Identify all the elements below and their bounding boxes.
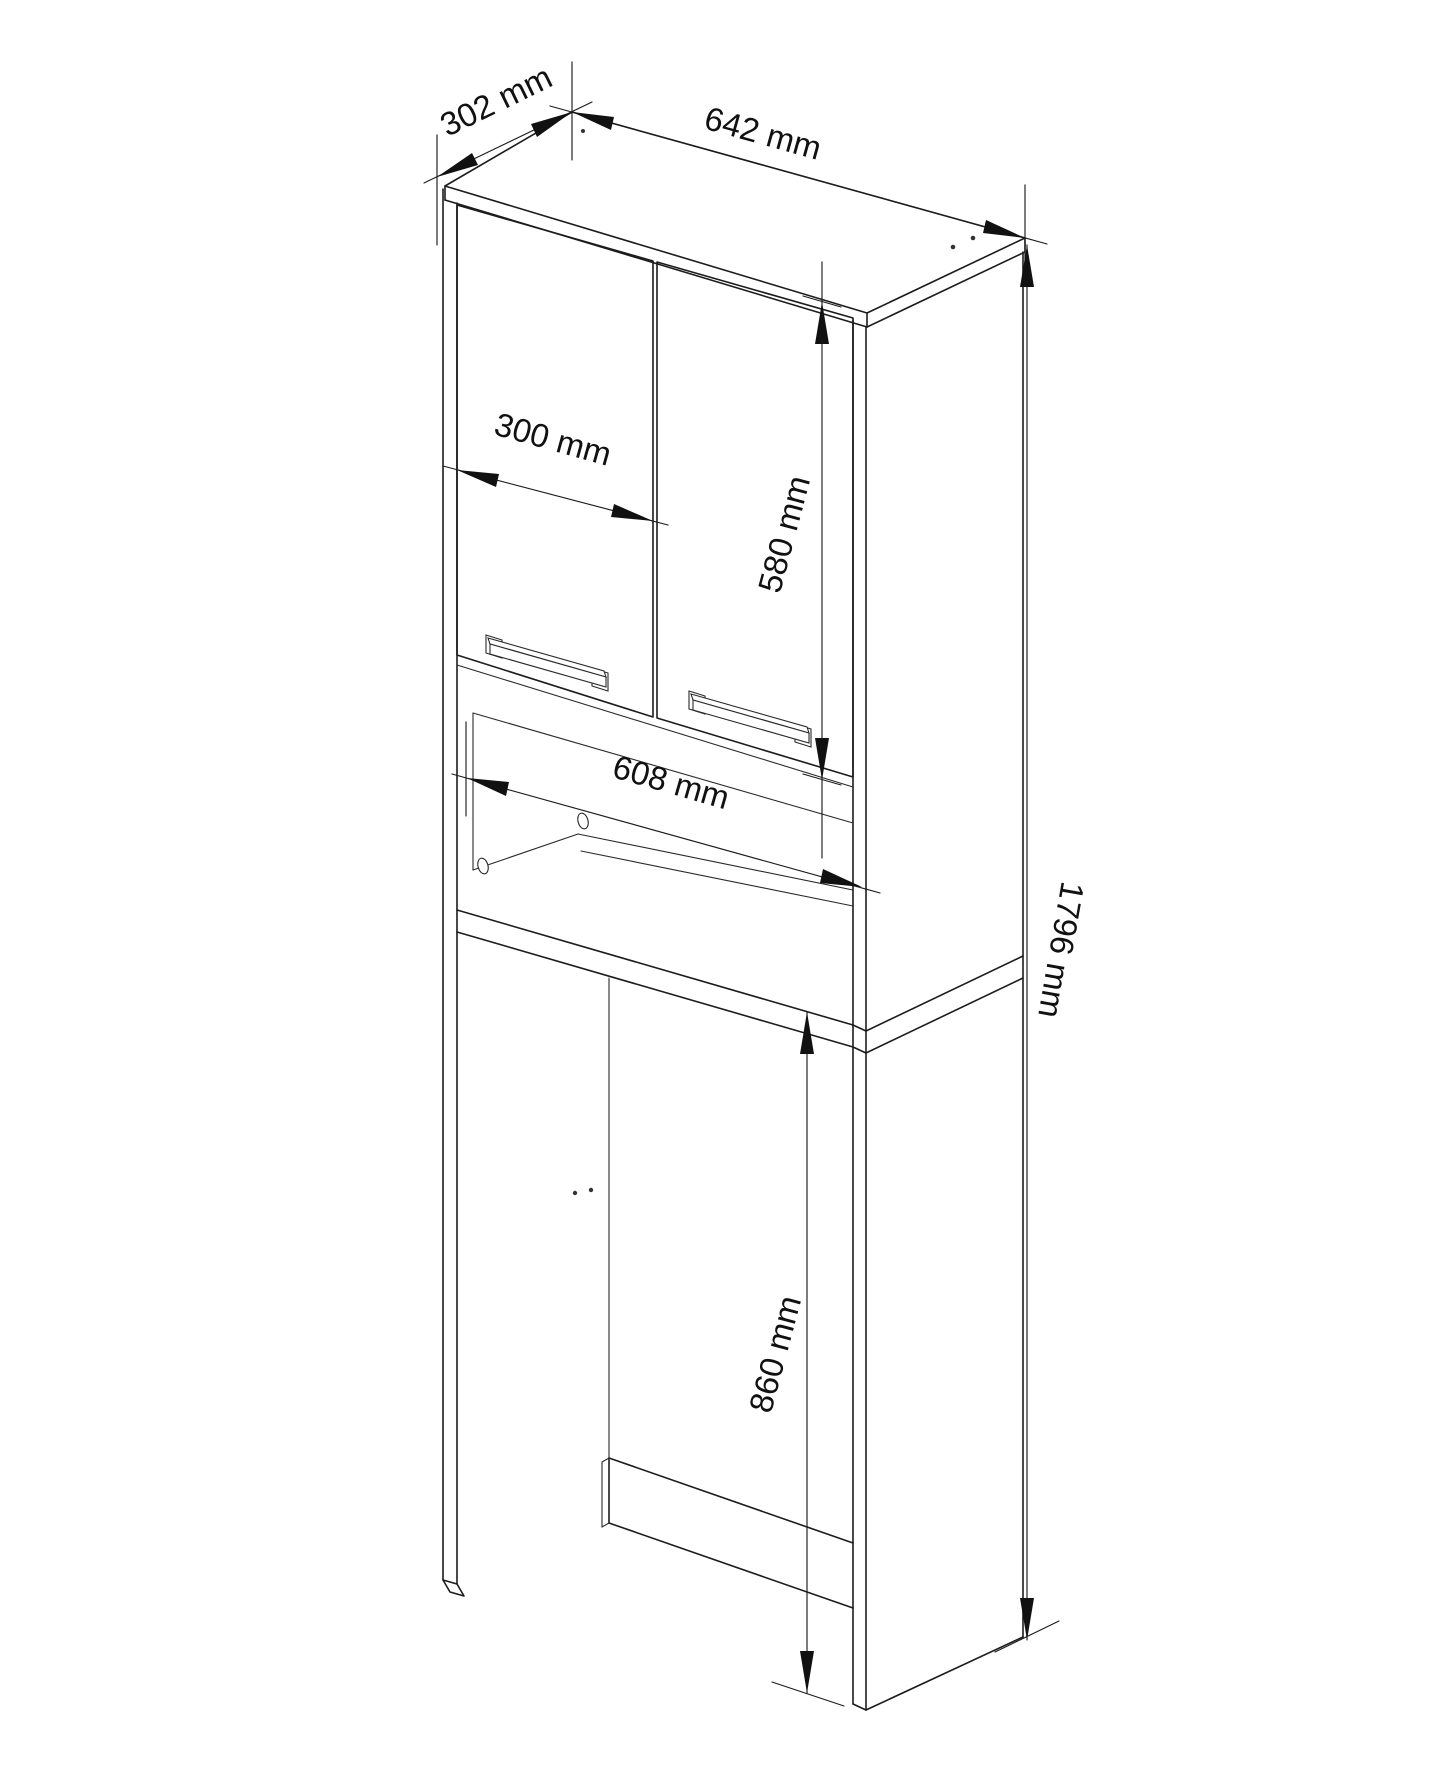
dimension-label-niche-width: 608 mm — [609, 748, 734, 816]
fitting-dot — [951, 245, 956, 250]
dimension-label-washer-height: 860 mm — [742, 1292, 809, 1417]
dimension-total-height: 1796 mm — [995, 245, 1091, 1652]
dimensions: 302 mm 642 mm 300 mm 580 mm — [424, 58, 1091, 1706]
divider-panel — [457, 910, 1023, 1053]
dimension-washer-height: 860 mm — [742, 1012, 844, 1706]
dimension-depth: 302 mm — [424, 58, 592, 245]
washer-space — [573, 978, 853, 1608]
fitting-dot — [971, 236, 976, 241]
technical-drawing: 302 mm 642 mm 300 mm 580 mm — [0, 0, 1445, 1782]
dimension-label-total-height: 1796 mm — [1031, 879, 1091, 1021]
right-door-handle — [689, 691, 811, 747]
cabinet-outline — [443, 112, 1025, 1710]
dimension-label-door-width: 300 mm — [491, 405, 616, 473]
fitting-dot — [581, 129, 585, 133]
left-door-handle — [486, 635, 608, 691]
plinth — [602, 1458, 853, 1608]
dimension-niche-width: 608 mm — [452, 722, 880, 893]
shelf-pin-hole — [476, 857, 490, 875]
shelf-pin-hole — [576, 812, 590, 830]
right-side-panel — [853, 252, 1023, 1710]
dimension-label-width: 642 mm — [701, 99, 826, 167]
fitting-dot — [573, 1191, 577, 1195]
drawing-page: 302 mm 642 mm 300 mm 580 mm — [0, 0, 1445, 1782]
dimension-door-width: 300 mm — [443, 405, 668, 525]
left-side-panel — [443, 189, 464, 1596]
fitting-dot — [589, 1188, 593, 1192]
dimension-label-door-height: 580 mm — [751, 472, 818, 597]
